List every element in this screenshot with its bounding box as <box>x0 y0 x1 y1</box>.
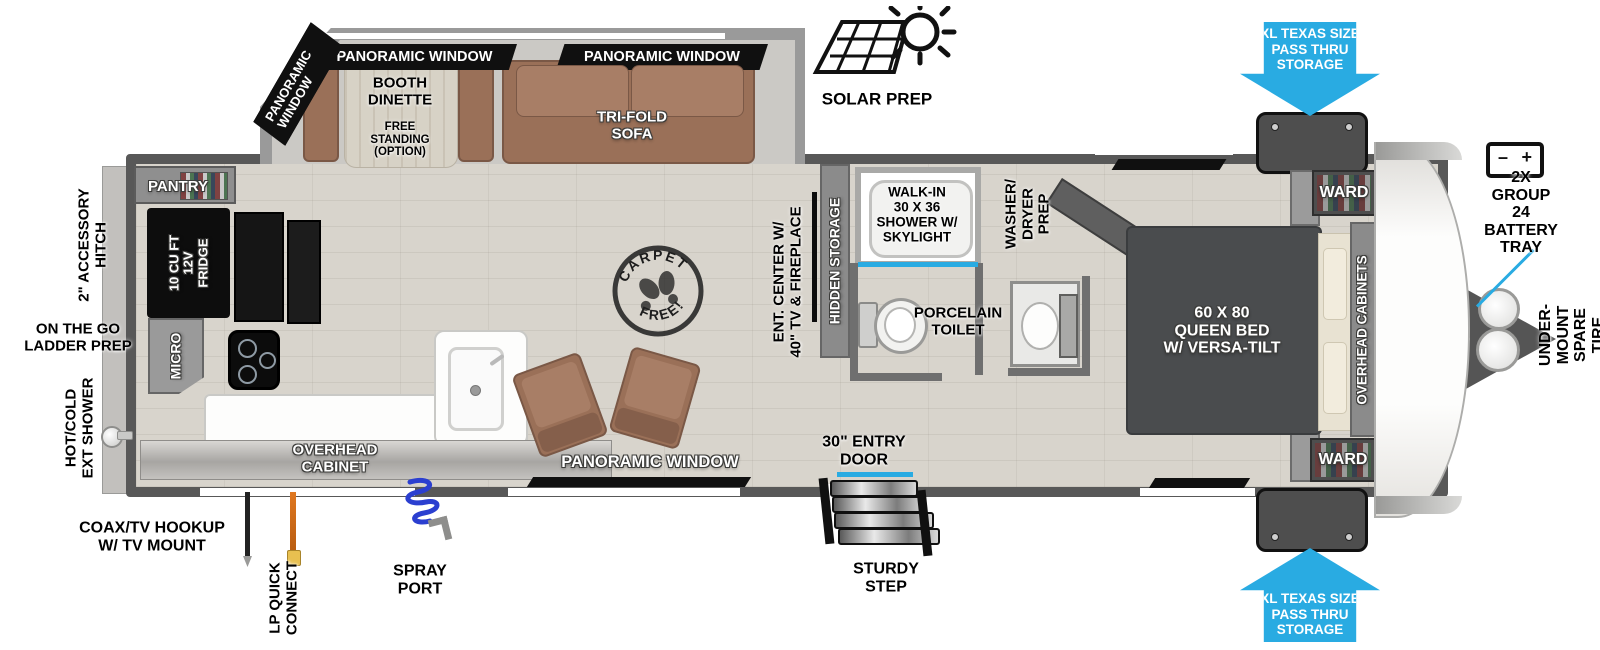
counter-dark <box>234 212 284 322</box>
svg-text:FREE!: FREE! <box>635 294 690 327</box>
spare-tire-label: UNDER-MOUNT SPARE TIRE <box>1537 304 1600 366</box>
vanity-sink <box>1021 302 1059 350</box>
pass-thru-arrow-bottom: XL TEXAS SIZE PASS THRU STORAGE <box>1240 548 1380 642</box>
carpet-free-stamp: CARPET FREE! <box>601 234 715 348</box>
pantry-label: PANTRY <box>148 179 208 196</box>
screw-icon <box>1271 123 1279 131</box>
rv-floorplan: PANORAMIC WINDOW PANORAMIC WINDOW PANORA… <box>0 0 1600 650</box>
bathroom-wall <box>1082 276 1090 376</box>
pass-thru-arrow-top: XL TEXAS SIZE PASS THRU STORAGE <box>1240 22 1380 116</box>
carpet-free-bottom-text: FREE! <box>635 294 690 327</box>
spray-port-hose-icon <box>396 476 456 542</box>
counter-dark <box>287 220 321 324</box>
pillow <box>1323 342 1347 414</box>
wardrobe-bottom-label: WARD <box>1319 451 1368 469</box>
accessory-hitch-label: 2" ACCESSORY HITCH <box>77 188 110 302</box>
coax-cable <box>245 492 250 558</box>
pass-thru-box-bottom <box>1256 488 1368 552</box>
screw-icon <box>1345 123 1353 131</box>
overhead-cabinets-label: OVERHEAD CABINETS <box>1356 255 1371 404</box>
queen-bed-label: 60 X 80 QUEEN BED W/ VERSA-TILT <box>1163 305 1280 358</box>
burner-icon <box>238 365 257 384</box>
battery-plus: + <box>1521 147 1532 168</box>
toilet-seat <box>884 307 916 343</box>
pillow <box>1323 248 1347 320</box>
lp-quick-connect-label: LP QUICK CONNECT <box>268 561 301 635</box>
wardrobe-top-label: WARD <box>1320 184 1369 202</box>
propane-tank <box>1476 328 1520 372</box>
tv-line <box>812 192 817 322</box>
front-cap-trim <box>1376 496 1462 514</box>
window <box>1095 147 1233 155</box>
bathroom-wall <box>1008 368 1090 376</box>
coax-cable-tip <box>243 556 252 567</box>
shower-label: WALK-IN 30 X 36 SHOWER W/ SKYLIGHT <box>877 185 958 244</box>
pass-thru-label-bottom: XL TEXAS SIZE PASS THRU STORAGE <box>1240 591 1380 638</box>
coax-label: COAX/TV HOOKUP W/ TV MOUNT <box>79 519 225 554</box>
window <box>1112 159 1227 170</box>
battery-tray-label: 2X GROUP 24 BATTERY TRAY <box>1482 169 1561 257</box>
lp-line <box>290 492 296 552</box>
window <box>527 477 751 487</box>
sturdy-step <box>820 478 932 562</box>
front-cap-trim <box>1376 142 1462 160</box>
pass-thru-label-top: XL TEXAS SIZE PASS THRU STORAGE <box>1240 26 1380 73</box>
bathroom-vanity <box>1010 281 1080 367</box>
spray-port-label: SPRAY PORT <box>393 562 447 597</box>
sturdy-step-label: STURDY STEP <box>853 560 919 595</box>
panoramic-window-label-top1: PANORAMIC WINDOW <box>312 44 517 70</box>
window <box>508 488 740 496</box>
tri-fold-sofa-label: TRI-FOLD SOFA <box>597 110 667 143</box>
panoramic-window-label-bottom: PANORAMIC WINDOW <box>561 453 739 471</box>
window <box>200 488 415 496</box>
step-tread <box>830 480 918 497</box>
entry-door-label: 30" ENTRY DOOR <box>822 433 905 468</box>
step-tread <box>832 496 926 513</box>
burner-icon <box>238 339 257 358</box>
ent-center-label: ENT. CENTER W/ 40" TV & FIREPLACE <box>772 206 805 357</box>
faucet-icon <box>489 354 504 366</box>
fridge-label: 10 CU FT 12V FRIDGE <box>168 235 211 291</box>
screw-icon <box>1345 533 1353 541</box>
micro-label: MICRO <box>168 333 183 380</box>
propane-tank <box>1478 288 1520 330</box>
bed-headboard <box>1318 233 1352 431</box>
screw-icon <box>1271 533 1279 541</box>
free-standing-label: FREE STANDING (OPTION) <box>370 121 429 159</box>
ext-shower-label: HOT/COLD EXT SHOWER <box>64 378 97 479</box>
window <box>300 33 725 39</box>
panoramic-window-text: PANORAMIC WINDOW <box>584 49 740 65</box>
solar-prep-icon <box>812 6 962 90</box>
washer-dryer-label: WASHER/ DRYER PREP <box>1003 179 1053 249</box>
dinette-bench-right <box>458 56 494 162</box>
entry-door-line <box>837 472 913 477</box>
kitchen-sink <box>448 347 504 431</box>
panoramic-window-text: PANORAMIC WINDOW <box>337 49 493 65</box>
hidden-storage-label: HIDDEN STORAGE <box>827 198 842 325</box>
burner-icon <box>259 352 276 369</box>
battery-minus: – <box>1498 147 1508 168</box>
ext-shower-knob-stem <box>117 431 133 440</box>
cooktop <box>228 330 280 390</box>
window <box>1149 478 1250 488</box>
vanity-mirror <box>1059 294 1078 358</box>
bathroom-wall <box>850 263 858 381</box>
porcelain-toilet-label: PORCELAIN TOILET <box>914 306 1002 339</box>
pass-thru-box-top <box>1256 112 1368 174</box>
bathroom-wall <box>850 373 942 381</box>
booth-dinette-label: BOOTH DINETTE <box>368 76 432 109</box>
solar-prep-label: SOLAR PREP <box>822 91 933 110</box>
shower-door-line <box>858 262 978 267</box>
overhead-cabinet-label: OVERHEAD CABINET <box>292 443 377 476</box>
sink-drain <box>470 385 481 396</box>
ladder-prep-label: ON THE GO LADDER PREP <box>24 322 132 355</box>
front-cap <box>1374 142 1470 518</box>
window <box>1140 488 1255 496</box>
